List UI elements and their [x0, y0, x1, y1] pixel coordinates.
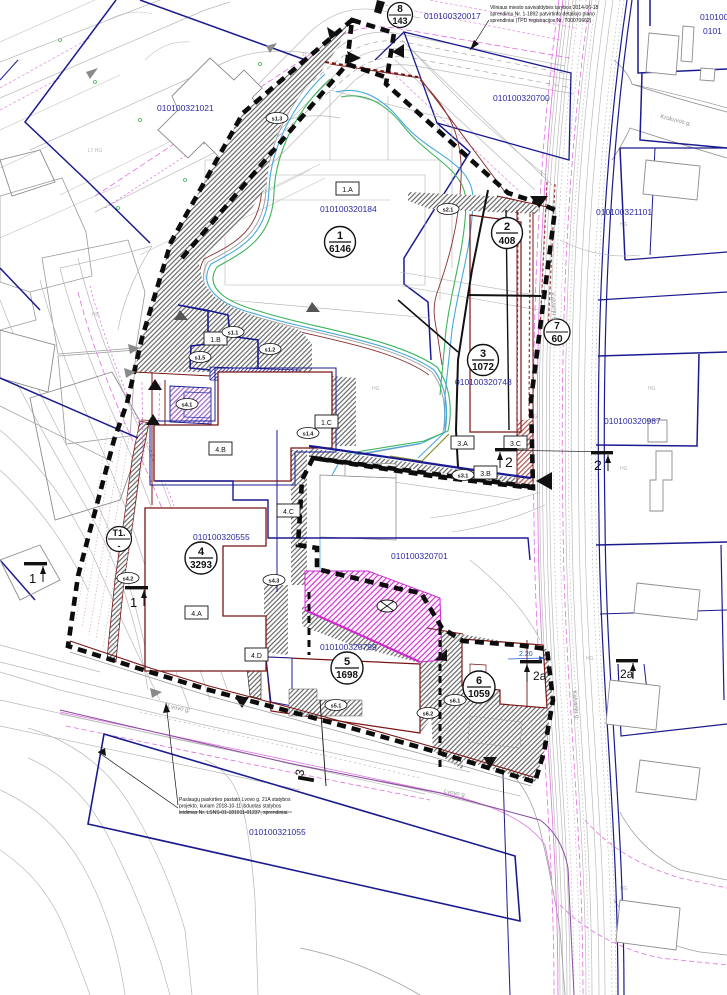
svg-text:1059: 1059	[468, 689, 490, 700]
svg-text:6: 6	[476, 675, 482, 687]
svg-text:0101003: 0101003	[700, 12, 727, 22]
svg-text:6146: 6146	[329, 244, 351, 255]
svg-text:2a: 2a	[533, 669, 547, 683]
svg-text:010100320700: 010100320700	[493, 93, 550, 103]
svg-text:sprendiniai (TPD registracijos: sprendiniai (TPD registracijos Nr. T0007…	[490, 18, 592, 24]
svg-text:T1.: T1.	[112, 528, 125, 538]
svg-text:Paslaugų paskirties pastato Lv: Paslaugų paskirties pastato Lvovo g. 21A…	[179, 797, 291, 803]
svg-text:1.C: 1.C	[321, 420, 332, 427]
svg-text:1072: 1072	[472, 362, 494, 373]
svg-text:LT HG: LT HG	[88, 148, 102, 154]
svg-text:1698: 1698	[336, 670, 358, 681]
svg-text:s3.1: s3.1	[458, 474, 469, 480]
svg-text:60: 60	[551, 334, 563, 345]
svg-text:4.D: 4.D	[251, 653, 262, 660]
svg-text:2: 2	[594, 457, 602, 473]
svg-text:010100321101: 010100321101	[596, 207, 652, 217]
svg-text:3.B: 3.B	[480, 471, 491, 478]
svg-text:1: 1	[130, 595, 137, 610]
svg-text:0101: 0101	[703, 26, 722, 36]
svg-text:projekto, kuriam 2018-10-11 iš: projekto, kuriam 2018-10-11 išduotas sta…	[179, 804, 282, 810]
svg-text:010100320987: 010100320987	[604, 416, 661, 426]
svg-text:010100320017: 010100320017	[424, 11, 481, 21]
svg-text:s4.2: s4.2	[123, 577, 134, 583]
svg-text:1: 1	[29, 571, 36, 586]
svg-text:3: 3	[480, 348, 486, 360]
svg-text:010100320748: 010100320748	[455, 377, 512, 387]
svg-text:010100321055: 010100321055	[249, 827, 306, 837]
svg-text:3.C: 3.C	[510, 441, 521, 448]
svg-text:s1.1: s1.1	[228, 331, 239, 337]
svg-text:s4.1: s4.1	[182, 403, 193, 409]
svg-text:2a: 2a	[620, 667, 634, 681]
svg-text:s1.4: s1.4	[303, 432, 315, 438]
svg-text:7: 7	[554, 321, 560, 332]
svg-text:010100320184: 010100320184	[320, 204, 377, 214]
svg-text:1.A: 1.A	[342, 187, 353, 194]
svg-text:408: 408	[499, 236, 516, 247]
svg-text:4.C: 4.C	[283, 509, 294, 516]
svg-text:Vilniaus miesto savivaldybės t: Vilniaus miesto savivaldybės tarybos 201…	[490, 5, 599, 11]
svg-text:2: 2	[504, 221, 510, 233]
svg-text:-: -	[118, 541, 121, 551]
svg-text:8: 8	[397, 4, 403, 15]
svg-text:4.B: 4.B	[215, 447, 226, 454]
svg-text:s4.3: s4.3	[269, 579, 280, 585]
svg-text:2.20: 2.20	[519, 651, 533, 658]
svg-text:3293: 3293	[190, 560, 212, 571]
svg-text:1: 1	[337, 230, 343, 242]
svg-text:s2.1: s2.1	[443, 208, 454, 214]
svg-text:4.A: 4.A	[191, 611, 202, 618]
svg-text:s1.5: s1.5	[195, 356, 206, 362]
svg-text:143: 143	[392, 16, 407, 26]
svg-text:sprendimu Nr. 1-1892 patvirtin: sprendimu Nr. 1-1892 patvirtinto detalio…	[490, 12, 595, 18]
svg-text:4: 4	[198, 546, 205, 558]
svg-text:3.A: 3.A	[457, 441, 468, 448]
svg-text:s1.3: s1.3	[272, 117, 283, 123]
svg-text:010100320555: 010100320555	[193, 532, 250, 542]
svg-text:s5.1: s5.1	[331, 704, 342, 710]
svg-text:HG: HG	[648, 386, 656, 392]
svg-text:HG: HG	[92, 312, 100, 318]
svg-text:2: 2	[505, 454, 513, 470]
svg-text:s6.2: s6.2	[423, 712, 434, 718]
svg-text:HG: HG	[620, 886, 628, 892]
svg-text:s6.1: s6.1	[450, 699, 461, 705]
svg-text:5: 5	[344, 656, 350, 668]
svg-text:s1.2: s1.2	[265, 348, 276, 354]
svg-text:HG: HG	[372, 386, 380, 392]
svg-text:leidimas Nr. LSNS-01-181011-01: leidimas Nr. LSNS-01-181011-01237, spren…	[179, 810, 289, 816]
svg-text:010100320701: 010100320701	[391, 551, 448, 561]
svg-text:1.B: 1.B	[210, 337, 221, 344]
svg-text:010100320799: 010100320799	[320, 642, 377, 652]
svg-text:010100321021: 010100321021	[157, 103, 214, 113]
svg-text:HG: HG	[620, 466, 628, 472]
